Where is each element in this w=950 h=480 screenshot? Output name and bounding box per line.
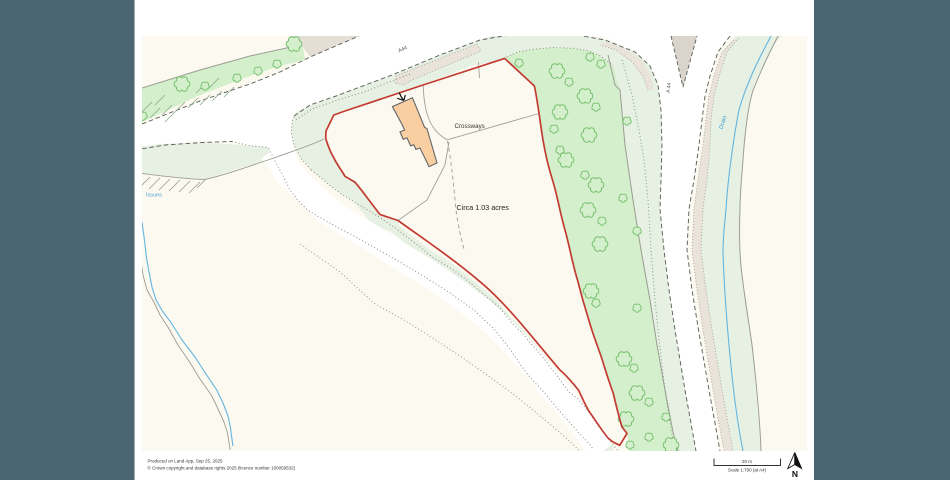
- svg-text:Issues: Issues: [146, 193, 162, 199]
- svg-text:© Crown copyright and database: © Crown copyright and database rights 20…: [148, 465, 296, 471]
- svg-text:20 m: 20 m: [742, 459, 752, 464]
- svg-text:Circa 1.03 acres: Circa 1.03 acres: [457, 203, 510, 212]
- svg-text:Produced on Land App, Sep 25,: Produced on Land App, Sep 25, 2025: [148, 459, 224, 464]
- svg-text:N: N: [792, 469, 798, 479]
- svg-text:Scale 1:700 (at A4): Scale 1:700 (at A4): [728, 468, 767, 473]
- svg-text:Crossways: Crossways: [455, 123, 485, 130]
